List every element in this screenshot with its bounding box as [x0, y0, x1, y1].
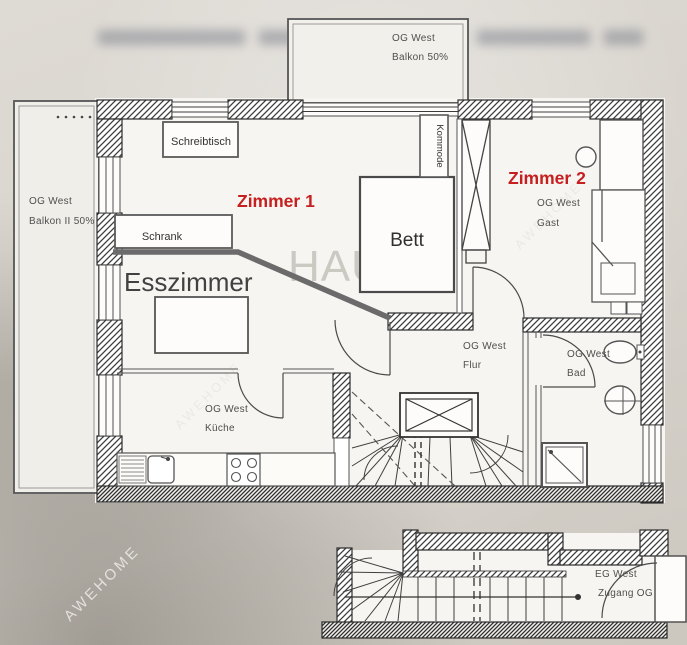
- floorplan-scan: HAU: [0, 0, 687, 645]
- bett-box: Bett: [360, 177, 454, 292]
- esszimmer-label: Esszimmer: [124, 267, 253, 297]
- zimmer2-closet: [600, 120, 643, 190]
- zimmer2-lamp: [576, 147, 596, 167]
- schreibtisch-label: Schreibtisch: [171, 136, 231, 148]
- balkon-top-label-1: OG West: [392, 33, 435, 44]
- balkon-top-label-2: Balkon 50%: [392, 52, 448, 63]
- balkon-left-label-2: Balkon II 50%: [29, 216, 95, 227]
- kommode-box: Kommode: [420, 115, 448, 177]
- schreibtisch-box: Schreibtisch: [163, 122, 238, 157]
- esstisch: [155, 297, 248, 353]
- balkon-left-label-1: OG West: [29, 196, 72, 207]
- schrank-box: Schrank: [115, 215, 232, 248]
- radiator: [611, 302, 642, 314]
- flur-label-2: Flur: [463, 360, 482, 371]
- shower-icon: [542, 443, 587, 487]
- zimmer2-bed: [592, 190, 645, 302]
- wardrobe-symbol: [462, 120, 490, 263]
- zimmer1-label: Zimmer 1: [237, 191, 315, 211]
- eg-zugang-label-2: Zugang OG: [598, 588, 653, 599]
- stove-icon: [227, 454, 260, 486]
- bad-label-2: Bad: [567, 368, 586, 379]
- brand-watermark: AWEHOME: [61, 542, 143, 624]
- kueche-label-1: OG West: [205, 404, 248, 415]
- floorplan-drawing: HAU: [0, 0, 687, 645]
- bad-label-1: OG West: [567, 349, 610, 360]
- flur-label-1: OG West: [463, 341, 506, 352]
- sink-basin-icon: [148, 456, 174, 483]
- bett-label: Bett: [390, 230, 425, 251]
- kitchen-counter: [117, 453, 335, 486]
- kommode-label: Kommode: [434, 124, 445, 167]
- eg-zugang-label-1: EG West: [595, 569, 637, 580]
- schrank-label: Schrank: [142, 231, 183, 243]
- kueche-label-2: Küche: [205, 423, 235, 434]
